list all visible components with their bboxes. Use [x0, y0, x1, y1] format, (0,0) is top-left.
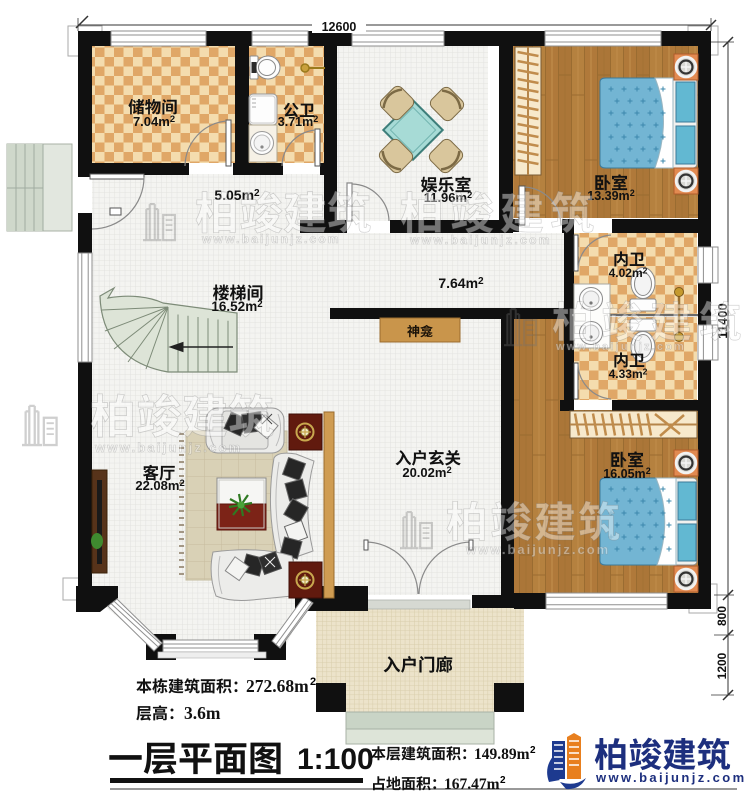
svg-text:3.71m2: 3.71m2: [278, 114, 318, 129]
svg-text:149.89m: 149.89m: [474, 746, 530, 763]
svg-text:www.baijunjz.com: www.baijunjz.com: [409, 233, 552, 247]
svg-text:12600: 12600: [322, 20, 357, 34]
svg-text:20.02m2: 20.02m2: [402, 464, 451, 480]
svg-text:3.6m: 3.6m: [184, 703, 221, 723]
svg-text:800: 800: [715, 606, 729, 626]
svg-text:7.64m2: 7.64m2: [438, 275, 484, 291]
svg-text:7.04m2: 7.04m2: [133, 113, 175, 129]
svg-text:272.68m: 272.68m: [246, 676, 309, 696]
svg-text:22.08m2: 22.08m2: [135, 477, 184, 493]
svg-text:13.39m2: 13.39m2: [587, 188, 634, 203]
svg-text:4.33m2: 4.33m2: [609, 366, 648, 381]
svg-text:2: 2: [500, 775, 506, 786]
svg-text:www.baijunjz.com: www.baijunjz.com: [555, 341, 686, 353]
svg-text:www.baijunjz.com: www.baijunjz.com: [465, 542, 610, 557]
svg-text:167.47m: 167.47m: [444, 776, 500, 793]
svg-text:1200: 1200: [715, 652, 729, 679]
svg-text:16.52m2: 16.52m2: [211, 299, 262, 314]
svg-text:2: 2: [310, 676, 316, 688]
svg-text:2: 2: [530, 745, 536, 756]
svg-text:1:100: 1:100: [297, 743, 374, 776]
svg-text:www.baijunjz.com: www.baijunjz.com: [94, 440, 242, 455]
svg-text:www.baijunjz.com: www.baijunjz.com: [201, 232, 341, 246]
svg-text:16.05m2: 16.05m2: [603, 466, 650, 481]
svg-text:www.baijunjz.com: www.baijunjz.com: [595, 770, 747, 785]
svg-text:4.02m2: 4.02m2: [609, 265, 648, 280]
